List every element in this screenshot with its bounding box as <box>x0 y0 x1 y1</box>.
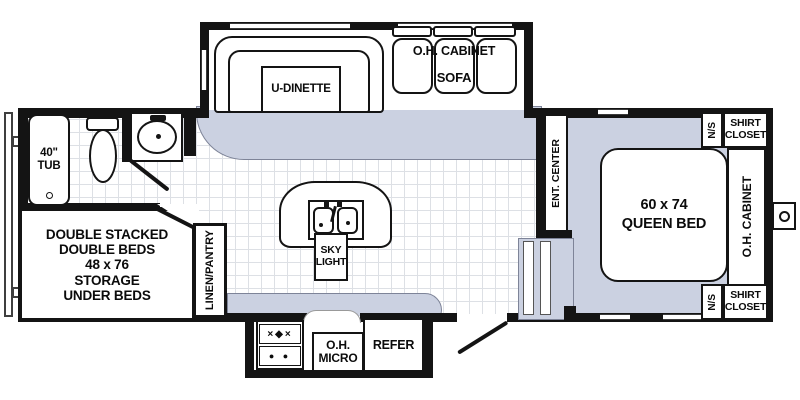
ent-center-label: ENT. CENTER <box>550 139 562 208</box>
wall-bath-corner <box>184 108 196 156</box>
queen-bed-label: 60 x 74 QUEEN BED <box>622 196 706 234</box>
carpet-living-strip <box>196 106 542 160</box>
stove-burner-row-icon: ● ● <box>259 346 301 366</box>
wall-step-stub <box>564 306 576 322</box>
oh-micro: O.H. MICRO <box>312 332 364 372</box>
window-dinette <box>230 23 350 29</box>
oh-micro-label: O.H. MICRO <box>319 339 358 366</box>
exterior-tab <box>772 202 796 230</box>
bath-faucet-icon <box>150 115 166 121</box>
tub-drain-icon <box>46 192 53 199</box>
tab-circle-icon <box>779 211 790 222</box>
queen-bed: 60 x 74 QUEEN BED <box>600 148 728 282</box>
wall-galley-left <box>245 316 254 378</box>
step-tread <box>523 241 534 315</box>
linen-pantry: LINEN/PANTRY <box>193 223 227 318</box>
sofa-oh-cabinet-label: O.H. CABINET <box>390 44 518 58</box>
wall-bedroom-divider <box>536 110 544 236</box>
stove-burner-row-icon: ×◆× <box>259 324 301 344</box>
nightstand-top-label: N/S <box>707 122 718 139</box>
shirt-closet-bottom-label: SHIRT CLOSET <box>725 290 766 314</box>
tub-label: 40" TUB <box>37 147 60 173</box>
counter-arch <box>303 310 361 323</box>
sink-drain-icon <box>319 223 323 227</box>
ent-center: ENT. CENTER <box>544 114 568 232</box>
nightstand-bottom-label: N/S <box>707 294 718 311</box>
window-bedroom-top <box>598 109 628 115</box>
oh-cabinet-bedroom-label: O.H. CABINET <box>740 176 754 257</box>
shirt-closet-top-label: SHIRT CLOSET <box>725 118 766 142</box>
stove: ×◆× ● ● <box>256 320 304 370</box>
skylight: SKY LIGHT <box>314 233 348 281</box>
faucet-knob-icon <box>324 202 329 207</box>
dinette-table: U-DINETTE <box>261 66 341 113</box>
bath-sink-cabinet <box>130 112 183 162</box>
shirt-closet-top: SHIRT CLOSET <box>723 112 768 148</box>
floor-plan: 40" TUB DOUBLE STACKED DOUBLE BEDS 48 x … <box>0 0 800 400</box>
dinette-label: U-DINETTE <box>271 83 331 96</box>
double-bed-room: DOUBLE STACKED DOUBLE BEDS 48 x 76 STORA… <box>18 207 196 322</box>
faucet-knob-icon <box>337 202 342 207</box>
nightstand-bottom: N/S <box>701 284 723 320</box>
linen-pantry-label: LINEN/PANTRY <box>204 230 216 310</box>
skylight-label: SKY LIGHT <box>316 245 347 269</box>
toilet-icon <box>89 129 117 183</box>
sofa-label: SOFA <box>390 70 518 85</box>
bath-drain-icon <box>156 134 161 139</box>
sofa-back-cushion <box>474 26 516 37</box>
sofa-back-cushion <box>433 26 473 37</box>
shirt-closet-bottom: SHIRT CLOSET <box>723 284 768 320</box>
refer: REFER <box>363 318 424 372</box>
sink-drain-icon <box>346 221 350 225</box>
entry-door <box>457 321 508 355</box>
wall-toilet-divider <box>122 112 130 162</box>
window-bedroom-bottom-1 <box>600 314 630 320</box>
wall-slideout-right <box>524 22 533 118</box>
double-bed-room-label: DOUBLE STACKED DOUBLE BEDS 48 x 76 STORA… <box>30 219 184 311</box>
nightstand-top: N/S <box>701 112 723 148</box>
wall-galley-right <box>424 316 433 378</box>
step-tread <box>540 241 551 315</box>
refer-label: REFER <box>373 338 414 352</box>
oh-cabinet-bedroom: O.H. CABINET <box>727 148 766 286</box>
sofa-back-cushion <box>392 26 432 37</box>
window-slideout-side <box>201 50 207 90</box>
